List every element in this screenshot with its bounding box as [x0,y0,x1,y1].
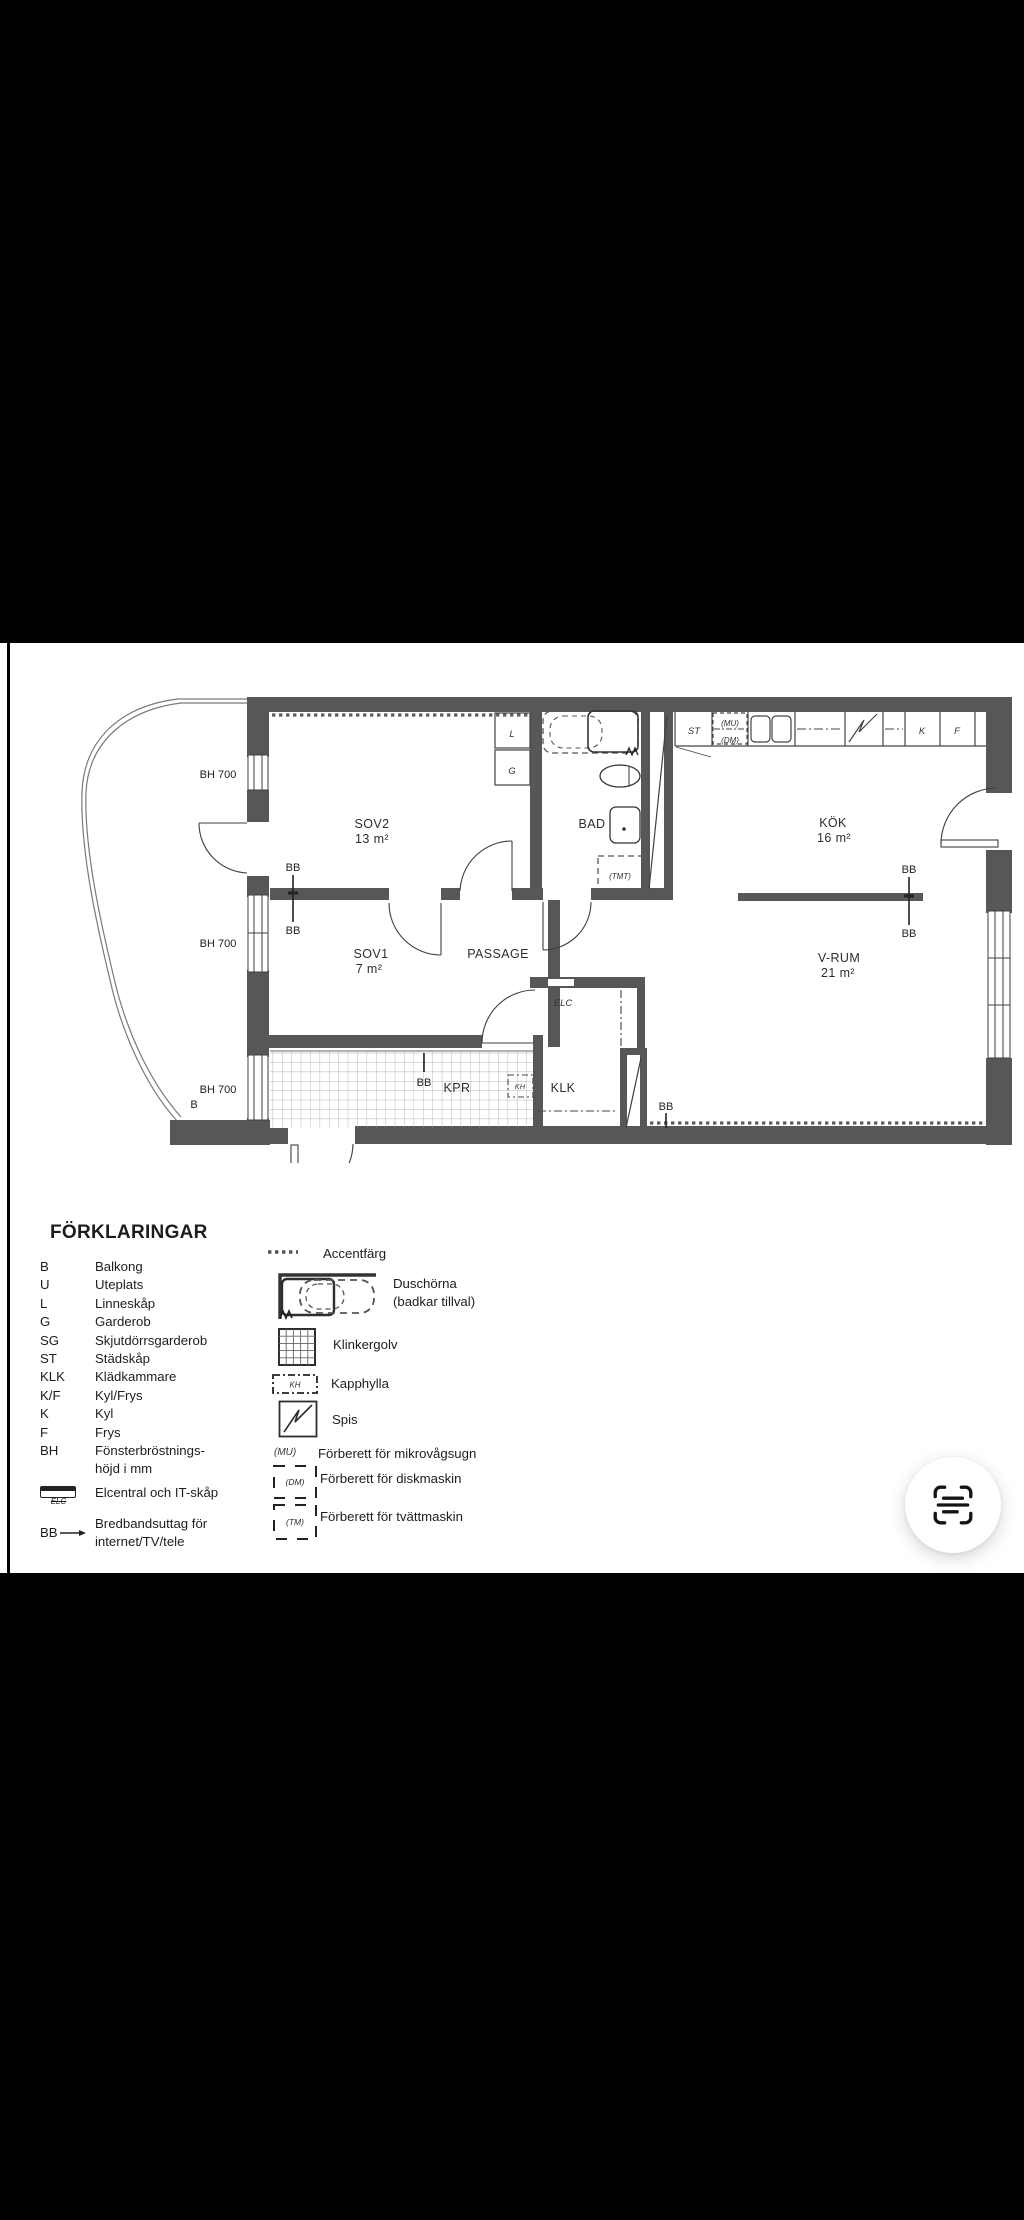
legend-title: FÖRKLARINGAR [50,1222,208,1244]
scan-button[interactable] [905,1457,1001,1553]
room-bad: BAD [579,817,606,831]
elc-niche [548,979,574,986]
room-sov2: SOV2 [355,817,390,831]
tiled-floor [270,1051,533,1128]
label-fridge: K [919,726,926,737]
legend-row: K/FKyl/Frys [40,1387,270,1405]
shower-corner-icon [278,1273,378,1320]
room-sov2-area: 13 m² [355,832,389,846]
room-kok-area: 16 m² [817,831,851,845]
toilet [610,807,640,843]
hat-shelf-label: Kapphylla [331,1375,389,1393]
floorplan-image-area: SOV2 13 m² BAD KÖK 16 m² SOV1 7 m² PASSA… [0,643,1024,1573]
svg-text:(DM): (DM) [286,1477,305,1487]
legend-row-broadband: BB Bredbandsuttag för internet/TV/tele [40,1515,270,1552]
shower-corner-label: Duschörna (badkar tillval) [393,1275,475,1310]
bb-label: BB [659,1101,674,1113]
room-kpr: KPR [444,1081,471,1095]
bb-label: BB [902,864,917,876]
label-kh: KH [515,1082,526,1091]
legend-row: BHFönsterbröstnings- höjd i mm [40,1442,270,1479]
dishwasher-prep-icon: (DM) [272,1464,318,1500]
label-freezer: F [954,726,961,737]
legend-row-elcentral: ELC Elcentral och IT-skåp [40,1484,270,1508]
legend-row: KLKKlädkammare [40,1368,270,1386]
dishwasher-prep-label: Förberett för diskmaskin [320,1470,461,1488]
stove-label: Spis [332,1411,358,1429]
bb-label: BB [286,862,301,874]
legend-abbreviations: BBalkong UUteplats LLinneskåp GGarderob … [40,1258,270,1552]
bb-label: BB [417,1077,432,1089]
microwave-prep-label: Förberett för mikrovågsugn [318,1445,476,1463]
top-black-bar [0,0,1024,643]
room-passage: PASSAGE [467,947,529,961]
legend-row: KKyl [40,1405,270,1423]
legend-row: BBalkong [40,1258,270,1276]
balcony-label: B [190,1099,197,1111]
elcentral-icon-label: ELC [40,1498,77,1506]
microwave-prep-icon: (MU) [274,1447,296,1458]
label-elc: ELC [554,998,573,1009]
sink-basin [772,716,791,742]
hat-shelf-icon: KH [272,1374,318,1394]
stove-icon [278,1400,318,1438]
label-linen-closet: L [509,729,514,740]
bb-arrow-icon [60,1529,86,1537]
room-kok: KÖK [819,816,847,830]
bb-label: BB [286,925,301,937]
svg-text:(TM): (TM) [286,1517,304,1527]
bh700-label: BH 700 [200,1084,237,1096]
room-sov1: SOV1 [354,947,389,961]
bb-label: BB [902,928,917,940]
label-dishwasher-prep: (DM) [721,736,739,745]
washer-prep-icon: (TM) [272,1503,318,1541]
stove-symbol [849,714,877,742]
legend-row: FFrys [40,1424,270,1442]
legend-row: STStädskåp [40,1350,270,1368]
balcony-outline [82,699,247,1121]
label-cleaning-closet: ST [688,726,701,737]
floorplan-drawing: SOV2 13 m² BAD KÖK 16 m² SOV1 7 m² PASSA… [0,643,1024,1163]
bh700-label: BH 700 [200,938,237,950]
bh700-label: BH 700 [200,769,237,781]
label-tmt-prep: (TMT) [609,872,631,881]
bathroom-fixtures [543,711,643,890]
room-vrum: V-RUM [818,951,860,965]
accent-color-icon [268,1248,298,1256]
washbasin [600,765,640,787]
room-klk: KLK [551,1081,576,1095]
svg-text:KH: KH [289,1381,300,1390]
scan-icon [930,1482,976,1528]
sink-basin [751,716,770,742]
fixture-labels: L G ST (MU) (DM) K F (TMT) [508,719,961,881]
legend-row: LLinneskåp [40,1295,270,1313]
tile-floor-icon [278,1328,316,1366]
legend-row: UUteplats [40,1276,270,1294]
tile-floor-label: Klinkergolv [333,1336,398,1354]
accent-color-label: Accentfärg [323,1245,386,1263]
label-microwave-prep: (MU) [721,719,739,728]
washer-prep-label: Förberett för tvättmaskin [320,1508,463,1526]
room-vrum-area: 21 m² [821,966,855,980]
bottom-black-bar [0,1573,1024,2220]
legend-row: SGSkjutdörrsgarderob [40,1332,270,1350]
room-sov1-area: 7 m² [356,962,383,976]
legend-row: GGarderob [40,1313,270,1331]
label-wardrobe: G [508,766,515,777]
